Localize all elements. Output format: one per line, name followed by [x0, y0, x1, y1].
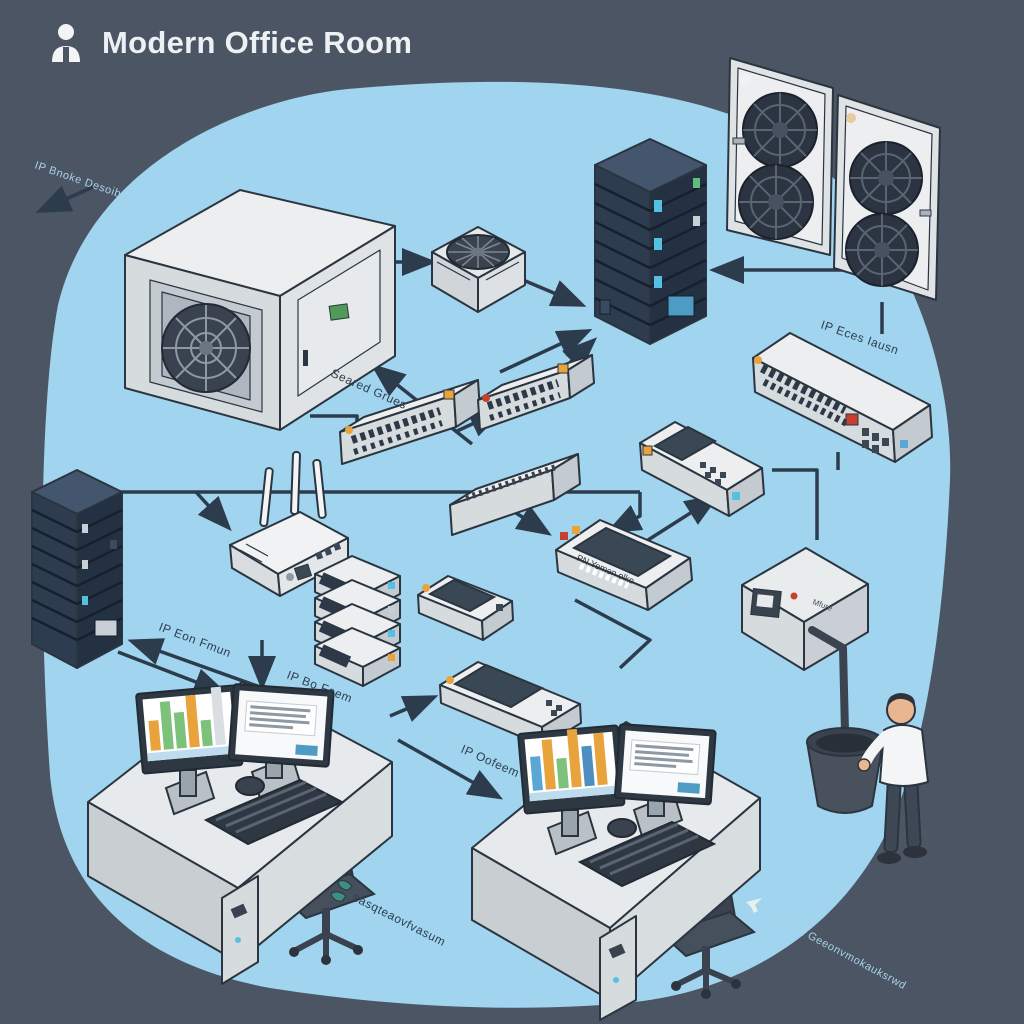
hvac-unit-1 — [727, 58, 833, 255]
page-title: Modern Office Room — [102, 25, 412, 61]
page-header: Modern Office Room — [46, 22, 412, 64]
fan-icon — [447, 235, 509, 269]
fan-icon — [846, 214, 918, 286]
label-top-left: IP Bnoke Desoibon — [33, 159, 135, 204]
person-icon — [46, 22, 86, 64]
office-diagram: PN Yemen olko Mfure — [0, 0, 1024, 1024]
cabinet-fan-icon — [162, 304, 250, 392]
mouse — [236, 777, 264, 795]
trash-bin — [807, 728, 883, 813]
label-bottom-right: Cuirnea Geeonvmokauksrwd — [765, 908, 909, 992]
fan-icon — [743, 93, 817, 167]
storage-rack-left — [32, 470, 122, 668]
hvac-unit-2 — [834, 95, 940, 300]
server-rack-tower — [595, 139, 706, 344]
fan-icon — [850, 142, 922, 214]
mouse — [608, 819, 636, 837]
switch-stack — [315, 556, 400, 686]
fan-icon — [739, 165, 813, 239]
